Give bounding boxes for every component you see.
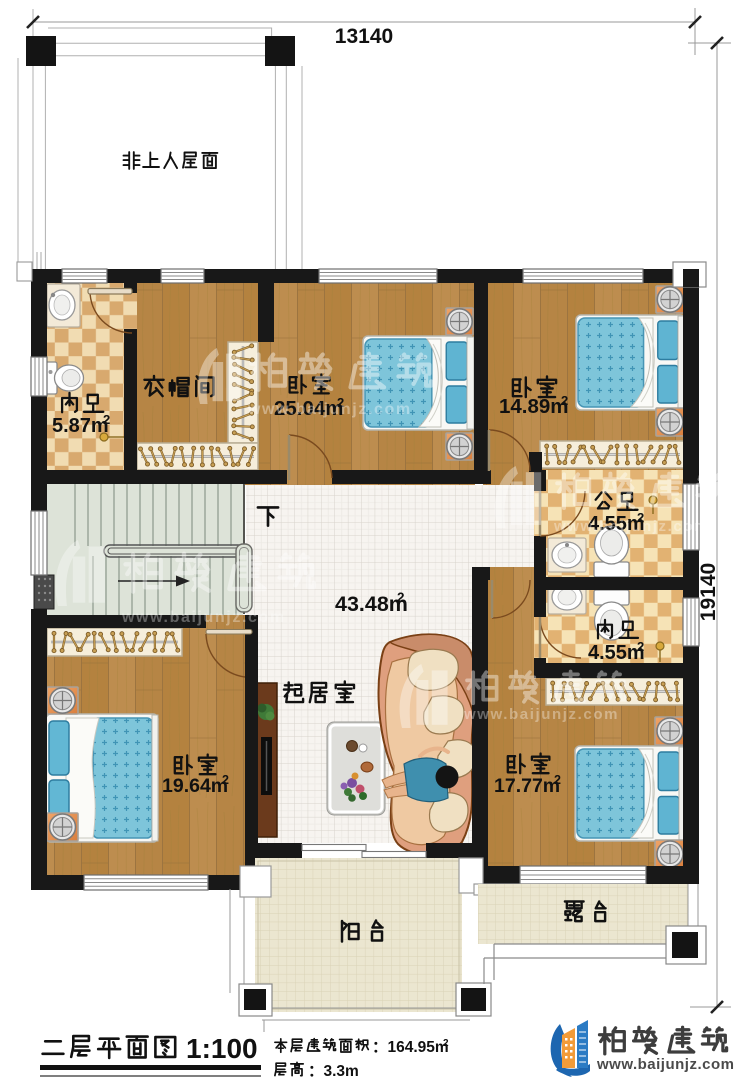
svg-text:：164.95m: ：164.95m: [372, 1039, 449, 1056]
svg-text:www.baijunjz.com: www.baijunjz.com: [596, 1056, 734, 1073]
svg-text:5.87m: 5.87m: [52, 415, 109, 437]
svg-text:2: 2: [397, 590, 405, 605]
svg-text:2: 2: [103, 412, 110, 427]
svg-text:www.baijunjz.com: www.baijunjz.com: [247, 401, 412, 418]
svg-text:2: 2: [561, 393, 568, 408]
svg-text:www.baijunjz.com: www.baijunjz.com: [553, 518, 709, 535]
svg-text:2: 2: [443, 1038, 449, 1049]
svg-text:www.baijunjz.com: www.baijunjz.com: [121, 609, 286, 626]
svg-text:1:100: 1:100: [186, 1033, 258, 1064]
svg-text:14.89m: 14.89m: [499, 395, 569, 418]
svg-text:www.baijunjz.com: www.baijunjz.com: [463, 706, 619, 723]
svg-text:19140: 19140: [697, 563, 720, 621]
svg-text:19.64m: 19.64m: [162, 775, 228, 797]
svg-text:：3.3m: ：3.3m: [308, 1063, 359, 1080]
svg-text:17.77m: 17.77m: [494, 775, 560, 797]
svg-text:2: 2: [637, 639, 644, 654]
svg-text:2: 2: [222, 773, 229, 787]
svg-text:2: 2: [554, 773, 561, 787]
svg-text:13140: 13140: [335, 25, 393, 48]
